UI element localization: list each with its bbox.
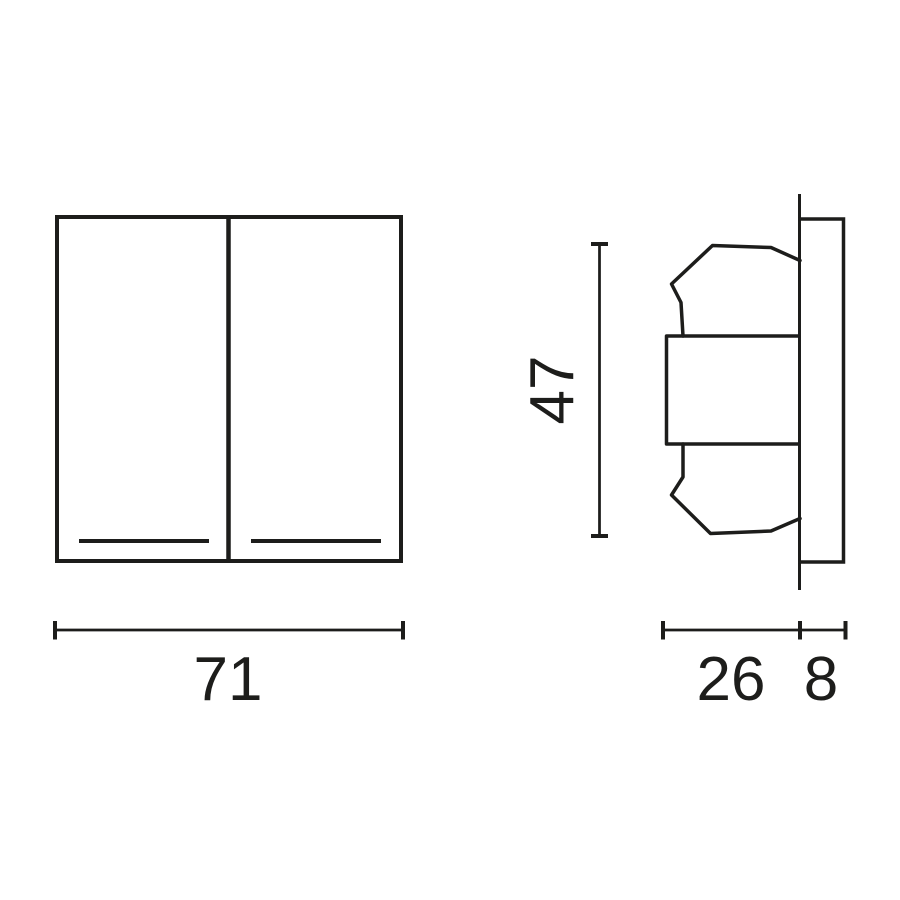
height-dimension: 47 <box>518 244 608 536</box>
plate-depth-dimension-value: 8 <box>804 645 838 714</box>
front-view <box>57 217 401 561</box>
width-dimension: 71 <box>55 621 403 714</box>
rocker-bottom-profile <box>672 444 801 534</box>
dimension-drawing: 71 47 26 8 <box>0 0 900 900</box>
rocker-depth-dimension-value: 26 <box>697 645 766 714</box>
width-dimension-value: 71 <box>194 645 263 714</box>
rocker-top-profile <box>672 246 801 337</box>
drawing-svg: 71 47 26 8 <box>0 0 900 900</box>
height-dimension-value: 47 <box>518 356 587 425</box>
rocker-frame-profile <box>667 336 799 444</box>
side-view <box>667 194 844 590</box>
wall-plate-profile <box>798 219 844 562</box>
depth-dimension: 26 8 <box>663 621 846 714</box>
